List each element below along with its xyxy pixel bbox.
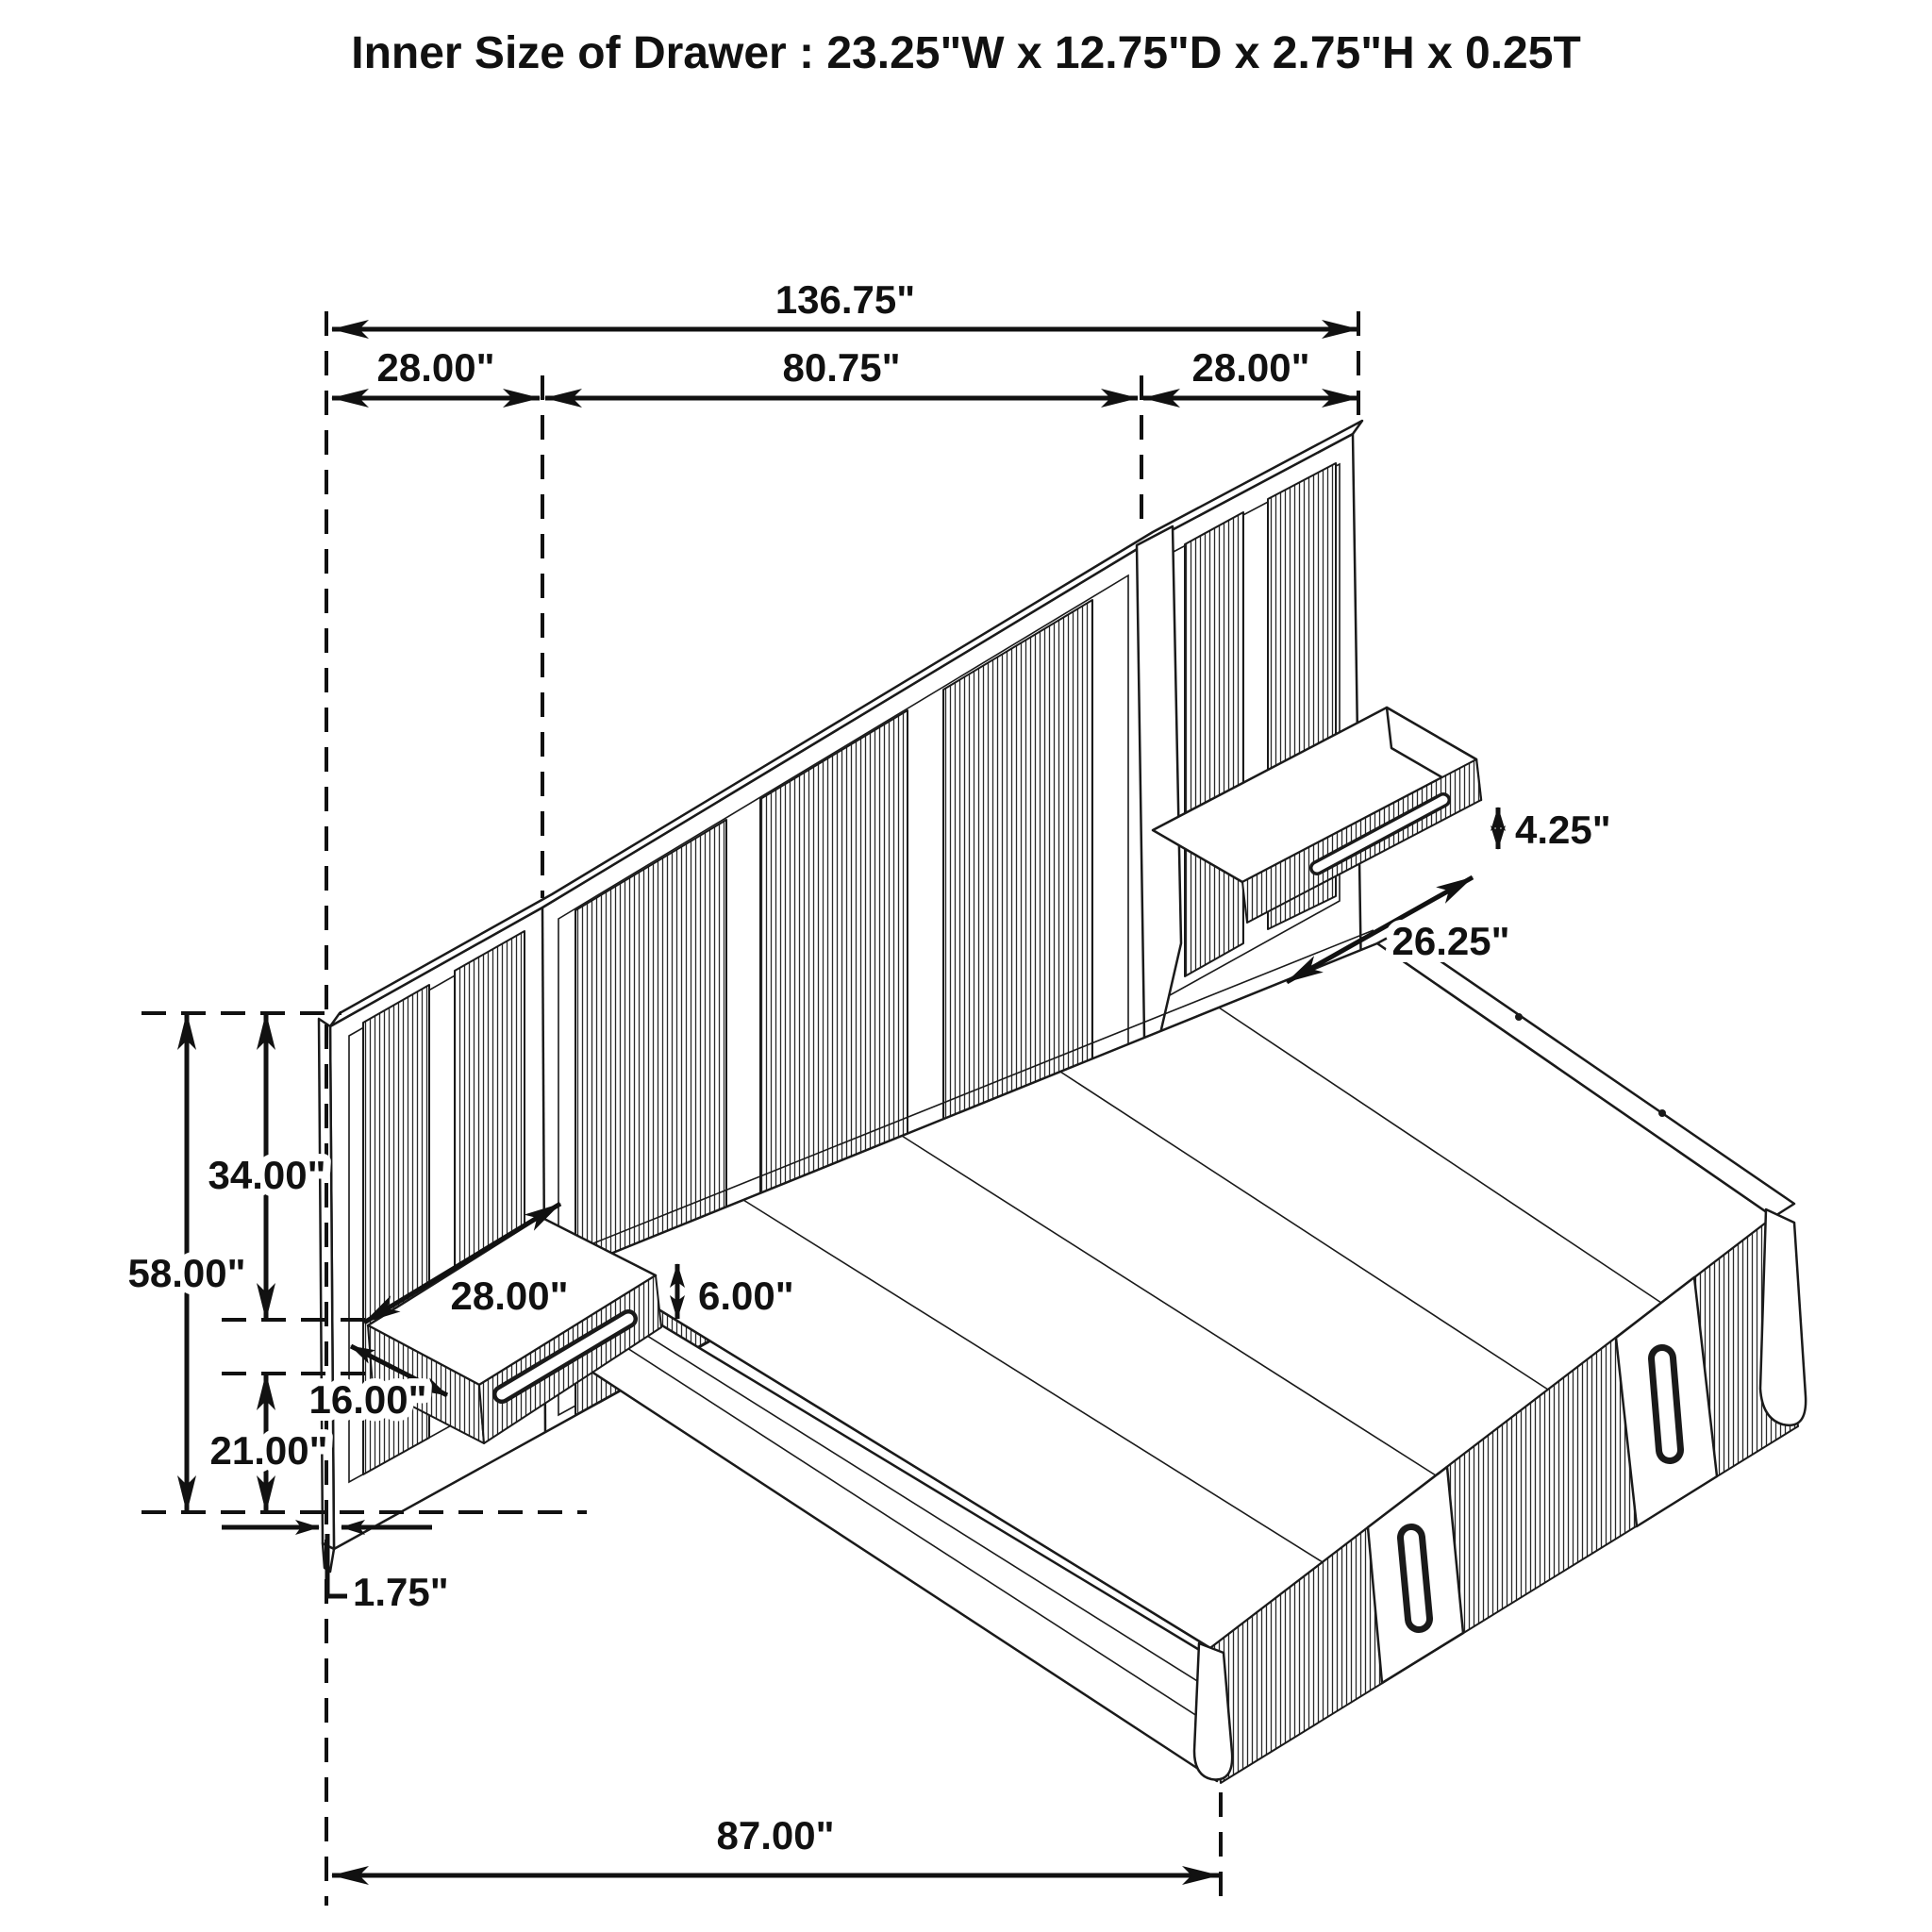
dim-left-shelf-width-label: 28.00" — [450, 1274, 568, 1318]
title: Inner Size of Drawer : 23.25"W x 12.75"D… — [351, 28, 1581, 78]
diagram-page: Inner Size of Drawer : 23.25"W x 12.75"D… — [0, 0, 1932, 1932]
right-rail-dot-2 — [1658, 1109, 1666, 1117]
dim-lower-height-label: 21.00" — [209, 1428, 327, 1473]
front-right-corner-post — [1760, 1209, 1806, 1425]
dim-total-width-label: 136.75" — [775, 277, 915, 322]
right-rail-dot-1 — [1515, 1013, 1523, 1021]
dim-upper-height-label: 34.00" — [208, 1153, 325, 1197]
dim-thickness-label: 1.75" — [353, 1570, 449, 1614]
dim-right-shelf-height-label: 4.25" — [1515, 808, 1611, 852]
dim-left-shelf-depth-label: 16.00" — [308, 1377, 426, 1422]
dim-total-height-label: 58.00" — [127, 1251, 245, 1295]
dim-center-panel-label: 80.75" — [782, 345, 900, 390]
footboard-handle-1 — [1411, 1538, 1419, 1619]
dim-bed-depth-label: 87.00" — [716, 1813, 834, 1857]
right-slat-panel-1 — [1185, 512, 1243, 976]
dim-right-panel-label: 28.00" — [1191, 345, 1309, 390]
dim-left-shelf-thickness-label: 6.00" — [698, 1274, 794, 1318]
footboard-handle-2 — [1662, 1358, 1670, 1450]
dim-left-panel-label: 28.00" — [376, 345, 494, 390]
bed-dimension-diagram: Inner Size of Drawer : 23.25"W x 12.75"D… — [0, 0, 1932, 1932]
dim-right-shelf-width-label: 26.25" — [1391, 919, 1509, 963]
